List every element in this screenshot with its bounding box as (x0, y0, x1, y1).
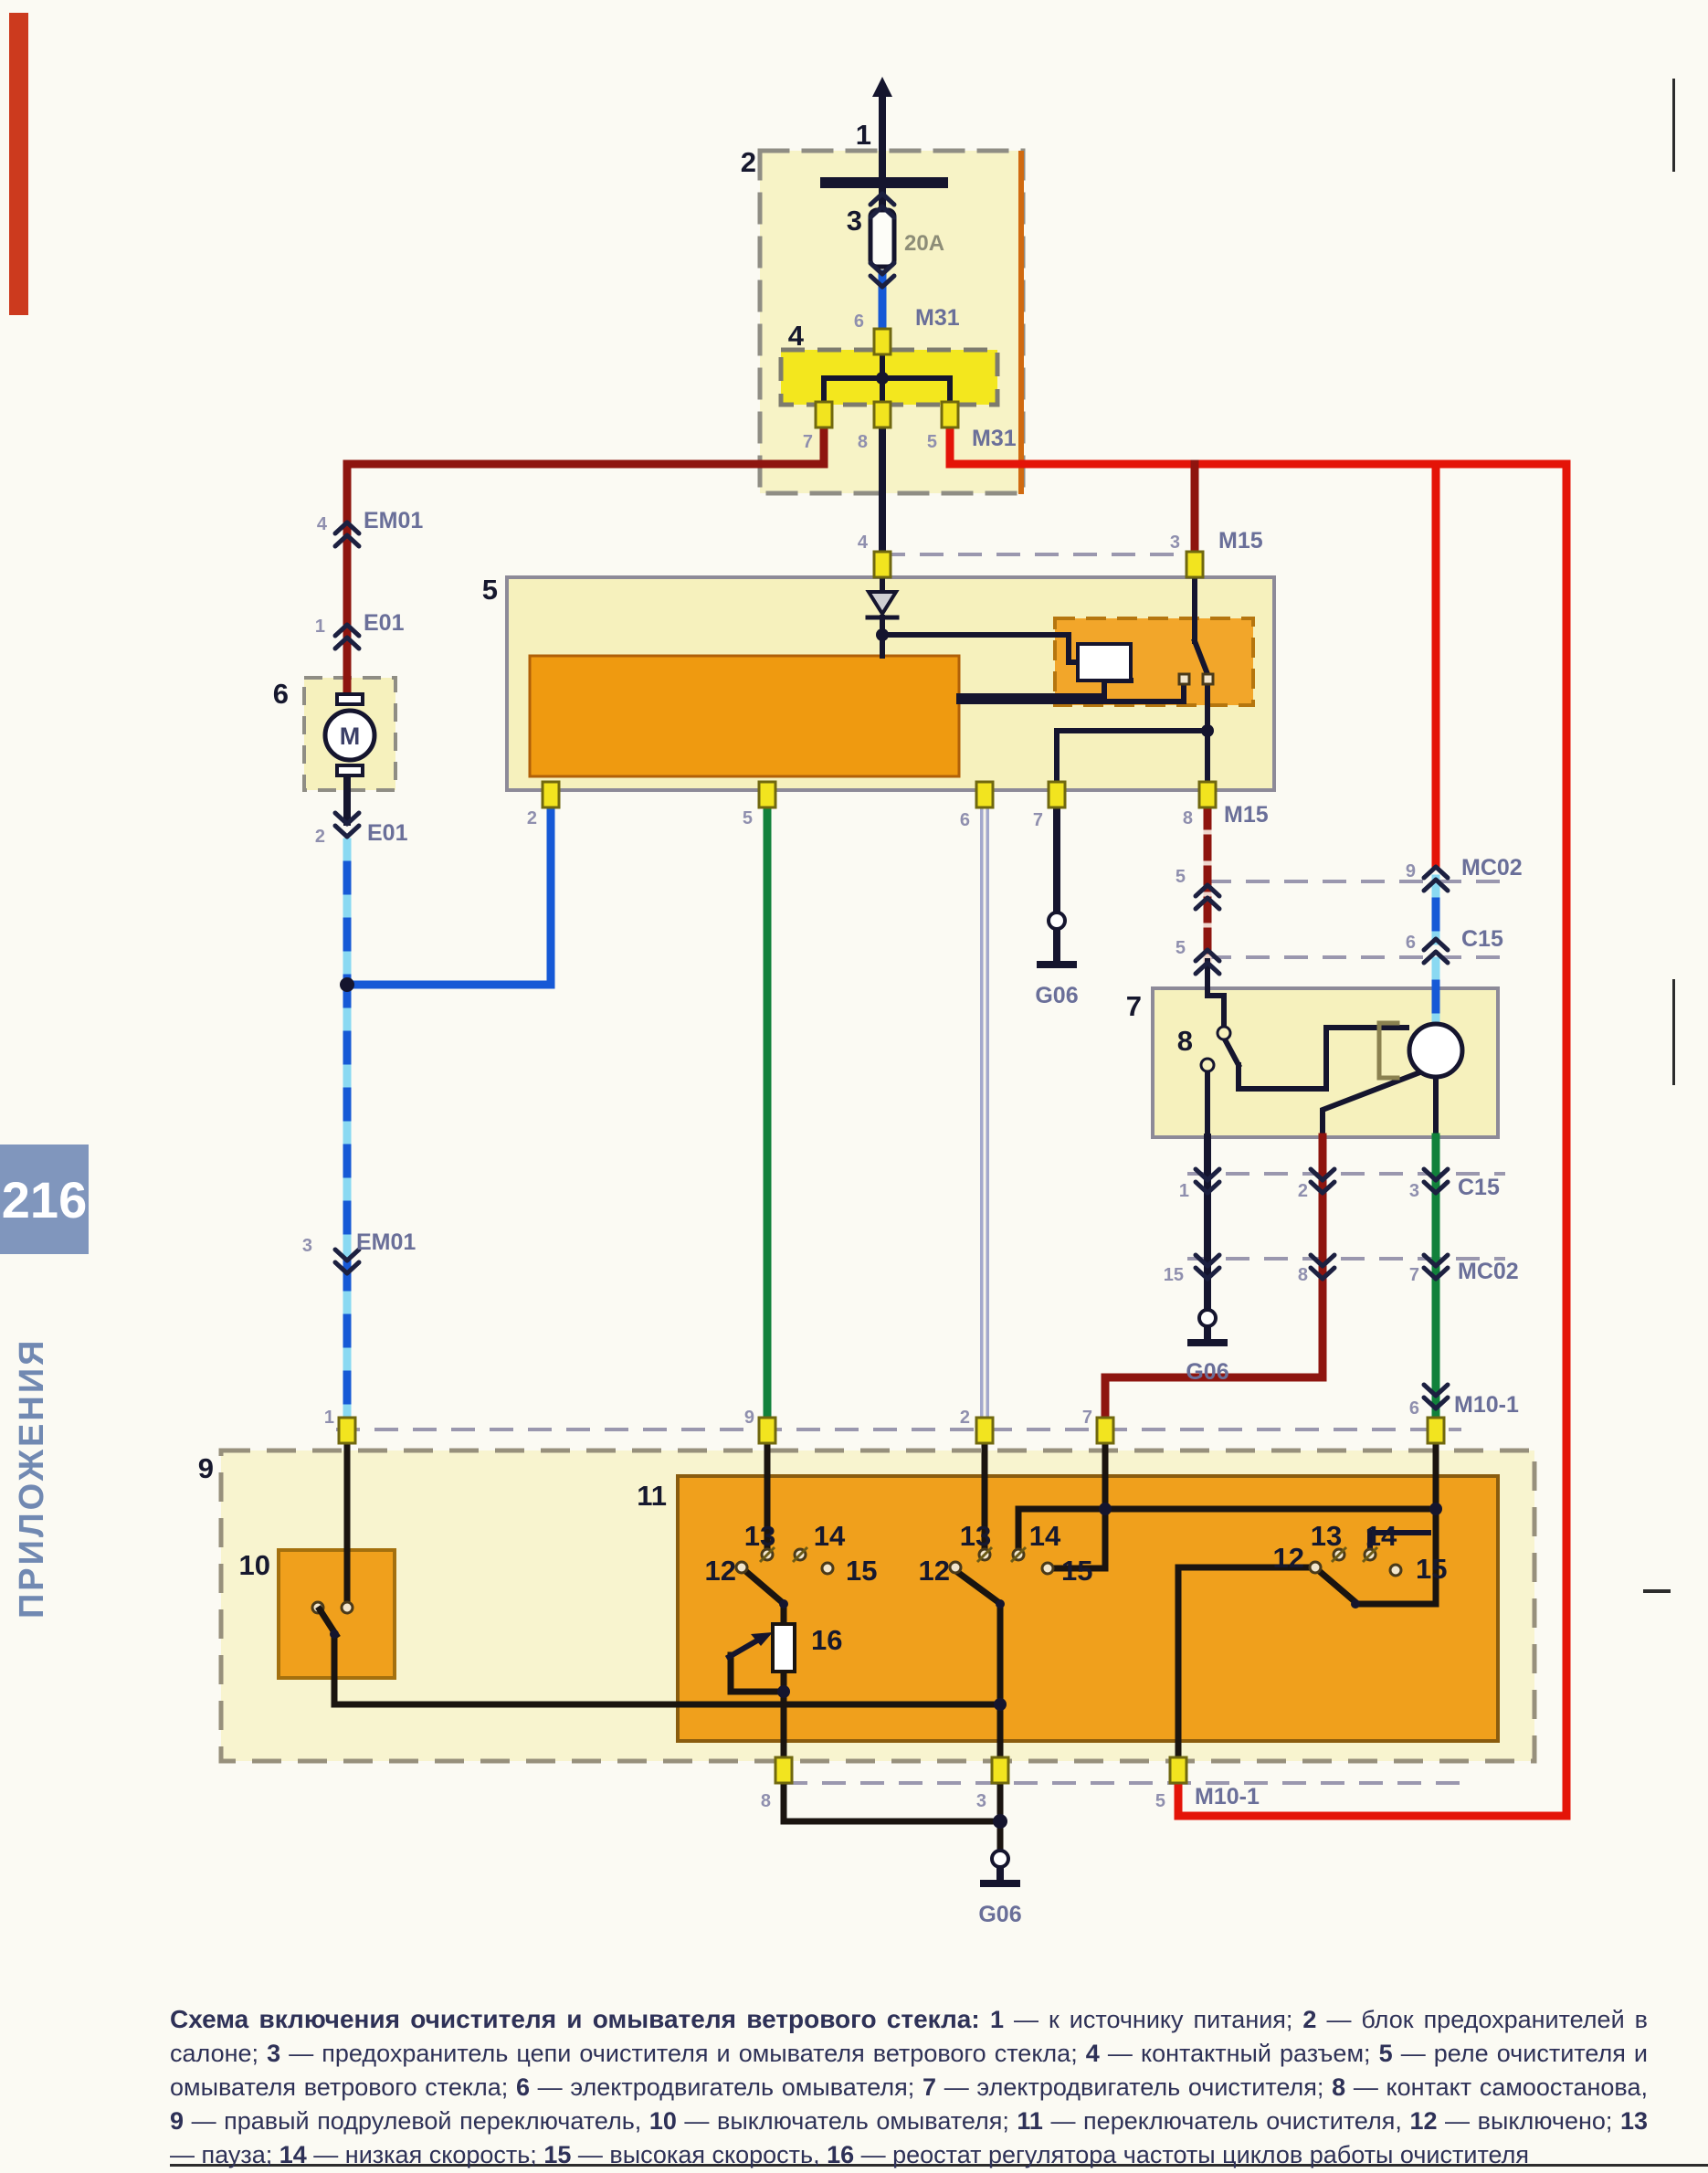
callout-2: 2 (741, 146, 756, 178)
pos14-b: 14 (1029, 1520, 1061, 1552)
pin-r5-2: 2 (527, 808, 537, 828)
pos12-a: 12 (705, 1555, 736, 1587)
pos13-b: 13 (960, 1520, 991, 1552)
pin-b9-1: 1 (324, 1408, 334, 1428)
conn-m31-top: M31 (915, 305, 960, 331)
pos13-a: 13 (744, 1520, 775, 1552)
pin-b9-9: 9 (744, 1408, 754, 1428)
callout-9: 9 (198, 1452, 214, 1484)
pin-m31-8: 8 (858, 432, 868, 452)
conn-em01-upper: EM01 (364, 508, 423, 533)
callout-6: 6 (273, 678, 289, 710)
pin-r5-7: 7 (1033, 810, 1043, 830)
callout-8: 8 (1177, 1025, 1193, 1057)
callout-4: 4 (788, 320, 805, 352)
motor-m-label: M (340, 723, 361, 750)
callout-5: 5 (482, 574, 498, 606)
pin-m15-3: 3 (1170, 533, 1180, 553)
pin-c15l-1: 1 (1179, 1181, 1189, 1201)
ground-label-3: G06 (978, 1902, 1021, 1927)
pin-b9b-3: 3 (976, 1791, 986, 1811)
pin-b9b-5: 5 (1155, 1791, 1165, 1811)
conn-mc02-lower: MC02 (1458, 1259, 1519, 1284)
park-contact-8-top (1218, 1027, 1230, 1039)
pin-em01-3: 3 (302, 1236, 312, 1256)
pin-r5-8: 8 (1183, 808, 1193, 828)
fuse-rating: 20A (904, 231, 944, 256)
pin-r5-5: 5 (743, 808, 753, 828)
pos15-b: 15 (1061, 1555, 1092, 1587)
pin-m31-5: 5 (927, 432, 937, 452)
conn-m15-bottom: M15 (1224, 802, 1269, 828)
pin-e01-1: 1 (315, 617, 325, 637)
callout-3: 3 (847, 205, 862, 237)
conn-m10-top: M10-1 (1454, 1392, 1519, 1418)
callout-10: 10 (239, 1549, 270, 1581)
ground-g06-switch (980, 1851, 1020, 1887)
pin-mc02l-8: 8 (1298, 1265, 1308, 1285)
pin-r5-6: 6 (960, 810, 970, 830)
fuse-3 (870, 210, 894, 267)
callout-1: 1 (856, 119, 871, 151)
pin-em01-4: 4 (317, 514, 328, 534)
conn-mc02-upper: MC02 (1461, 855, 1523, 881)
pin-b9b-8: 8 (761, 1791, 771, 1811)
caption-text: Схема включения очистителя и омывателя в… (170, 2002, 1648, 2172)
park-contact-8-fixed (1201, 1059, 1214, 1071)
conn-e01-lower: E01 (367, 820, 408, 846)
relay-coil (1078, 644, 1131, 680)
pos13-c: 13 (1311, 1520, 1342, 1552)
pos12-b: 12 (919, 1555, 950, 1587)
scanned-manual-page: 216 ПРИЛОЖЕНИЯ (0, 0, 1708, 2173)
pin-b9-7: 7 (1082, 1408, 1092, 1428)
pin-r5-4: 4 (858, 533, 869, 553)
pin-m31-6: 6 (854, 311, 864, 332)
pin-mc02l-15: 15 (1164, 1265, 1184, 1285)
pin-e01-2: 2 (315, 827, 325, 847)
pos15-c: 15 (1416, 1553, 1447, 1585)
pin-c15-5: 5 (1176, 938, 1186, 958)
relay-contact-b (1203, 674, 1213, 684)
pin-b9-2: 2 (960, 1408, 970, 1428)
callout-7: 7 (1126, 990, 1142, 1022)
pin-mc02-5: 5 (1176, 867, 1186, 887)
wiring-diagram: M (0, 0, 1708, 2173)
pin-m10-6: 6 (1409, 1398, 1419, 1419)
conn-m15-top: M15 (1218, 528, 1263, 554)
callout-11: 11 (637, 1480, 667, 1512)
conn-m31-right: M31 (972, 426, 1017, 451)
relay-body (530, 656, 959, 776)
pin-c15l-2: 2 (1298, 1181, 1308, 1201)
conn-m10-bottom: M10-1 (1195, 1784, 1260, 1809)
pin-mc02-9: 9 (1406, 861, 1416, 881)
pin-c15l-3: 3 (1409, 1181, 1419, 1201)
ground-label-2: G06 (1186, 1359, 1228, 1385)
pos12-c: 12 (1273, 1542, 1304, 1574)
pos14-a: 14 (814, 1520, 846, 1552)
pos15-a: 15 (846, 1555, 877, 1587)
rheostat-16 (773, 1624, 795, 1672)
ground-g06-wiper (1187, 1310, 1228, 1346)
pos14-c: 14 (1365, 1520, 1397, 1552)
conn-e01-upper: E01 (364, 610, 405, 636)
conn-em01-mid: EM01 (356, 1229, 416, 1255)
callout-16: 16 (811, 1624, 842, 1656)
conn-c15-upper: C15 (1461, 926, 1503, 952)
conn-c15-lower: C15 (1458, 1175, 1500, 1200)
pin-m31-7: 7 (803, 432, 813, 452)
pin-mc02l-7: 7 (1409, 1265, 1419, 1285)
pin-c15-6: 6 (1406, 933, 1416, 953)
relay-contact-a (1179, 674, 1189, 684)
supply-arrow (872, 77, 892, 97)
busbar (820, 177, 948, 188)
ground-label-1: G06 (1035, 983, 1078, 1008)
